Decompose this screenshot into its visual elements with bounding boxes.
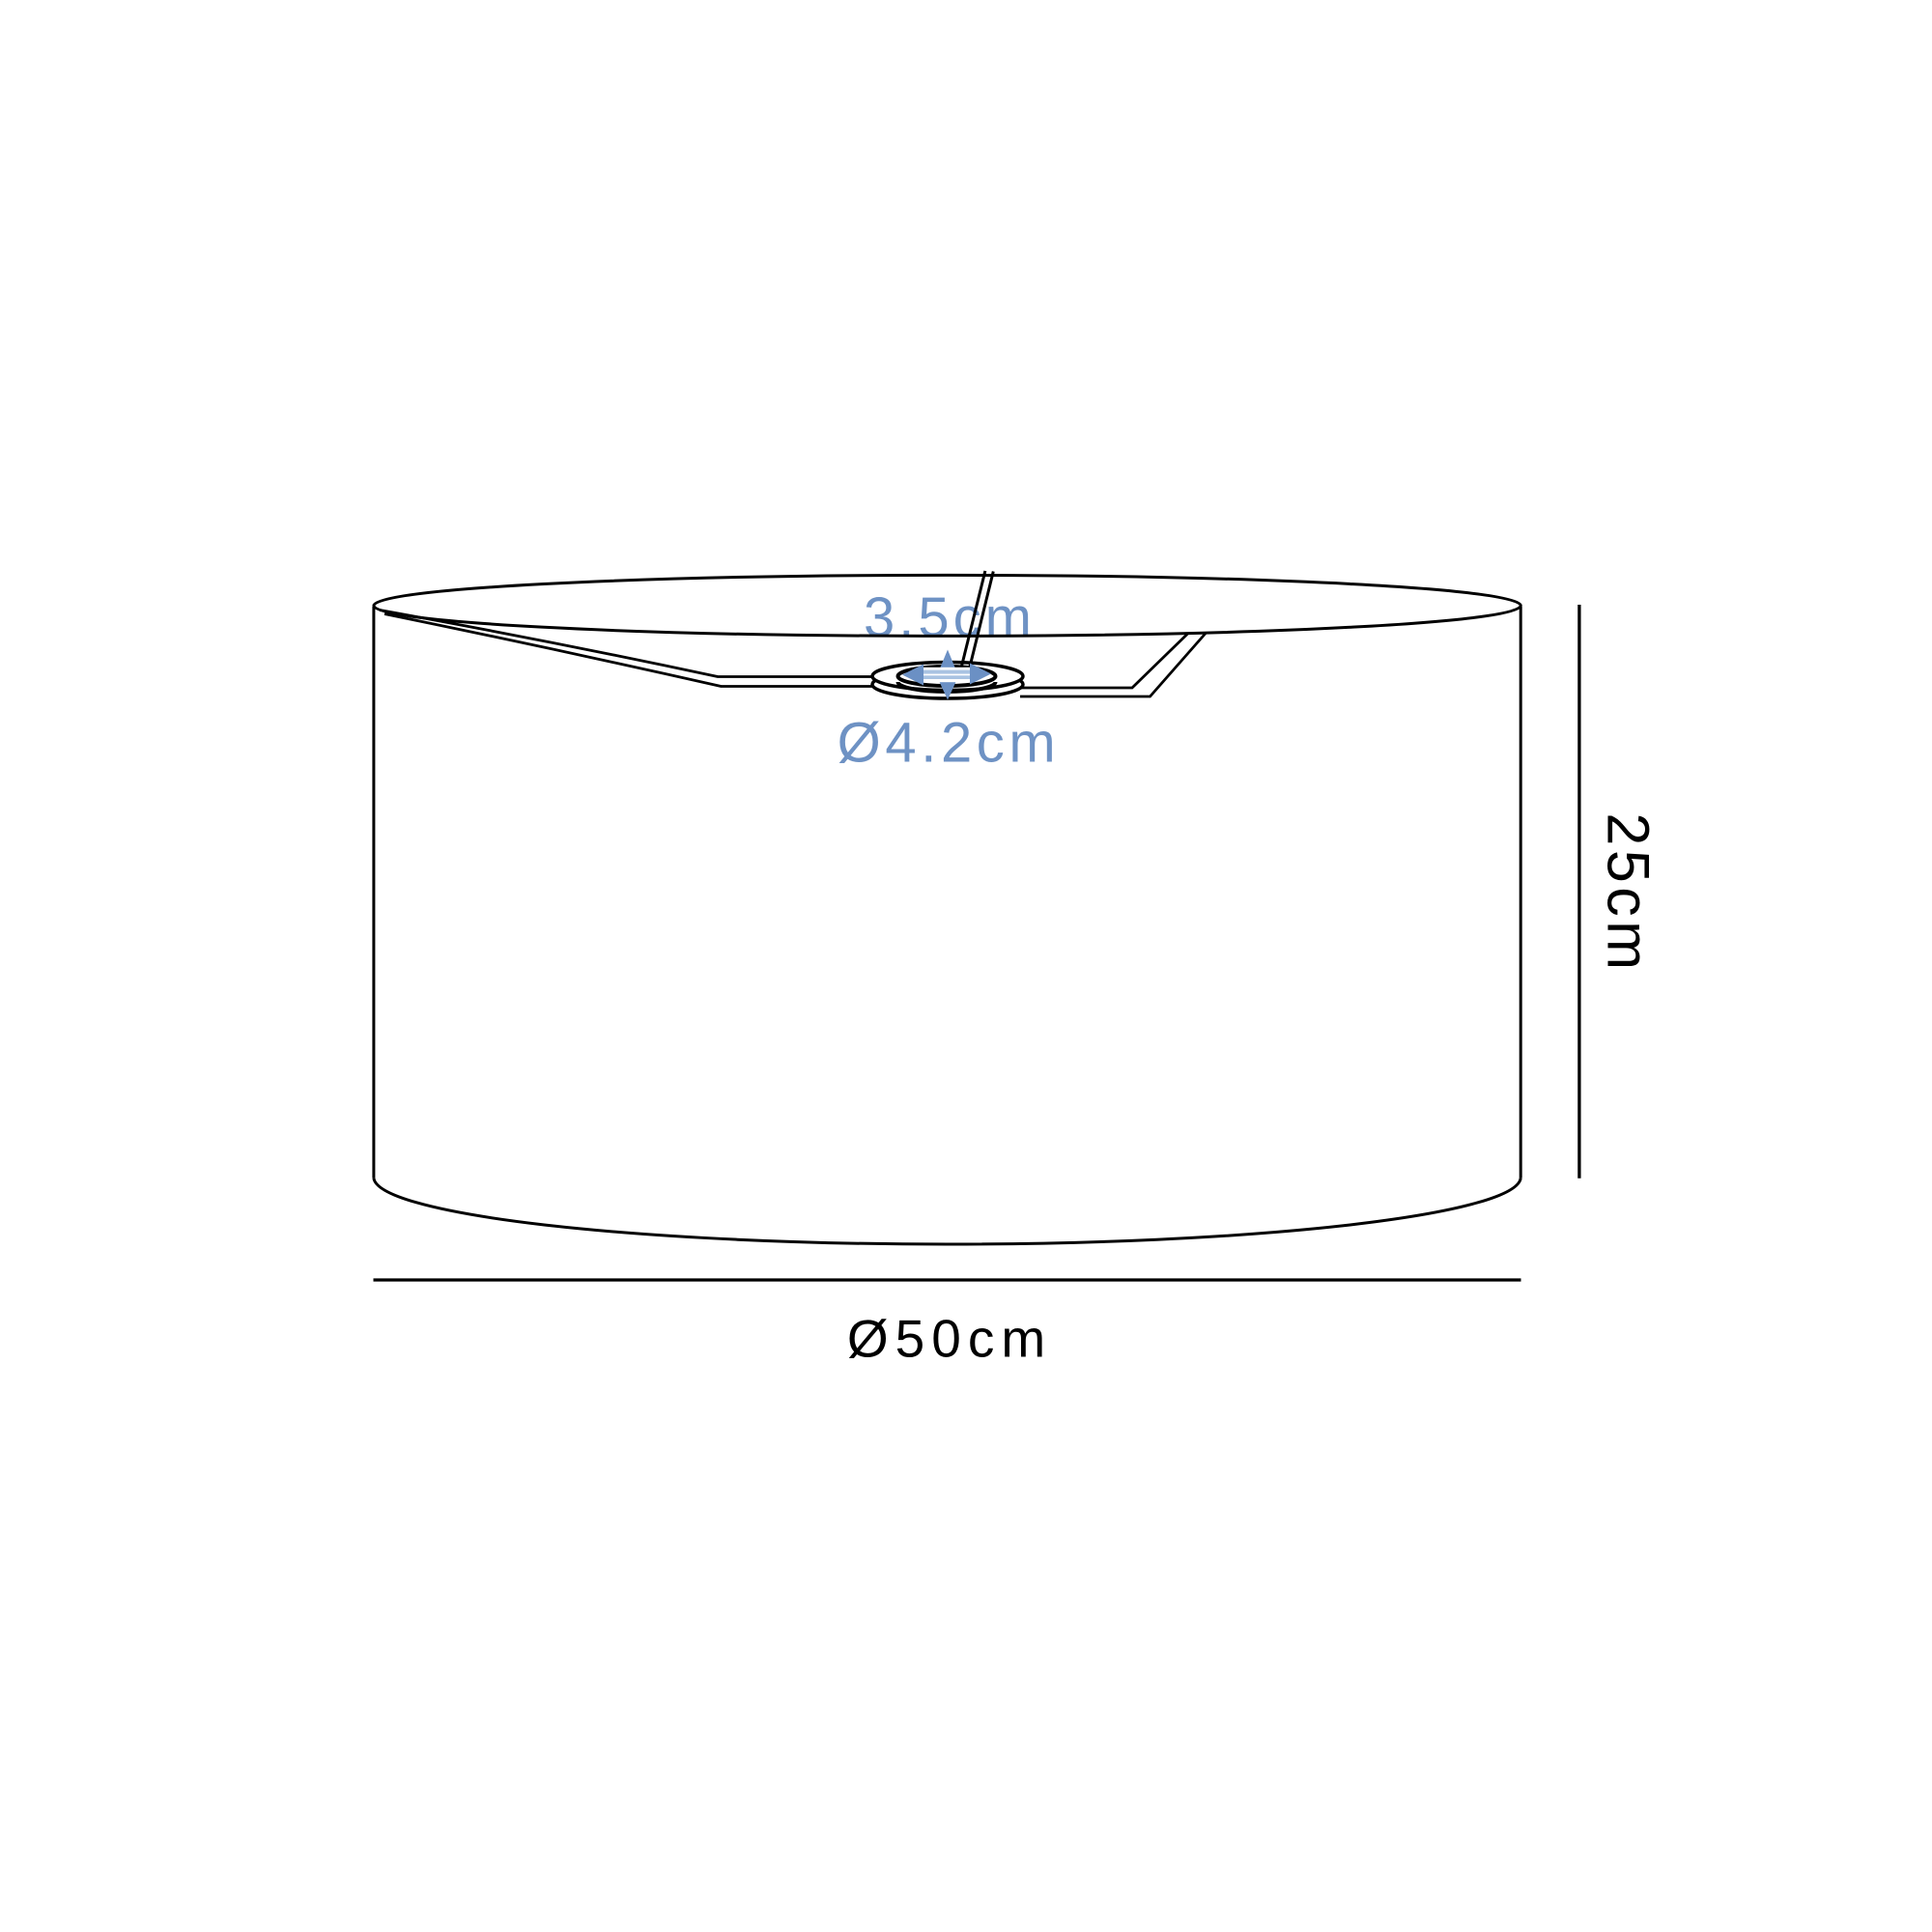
svg-text:25cm: 25cm [1596, 812, 1662, 974]
svg-text:3.5cm: 3.5cm [864, 586, 1036, 649]
svg-text:Ø50cm: Ø50cm [847, 1309, 1052, 1369]
svg-text:Ø4.2cm: Ø4.2cm [838, 711, 1061, 774]
